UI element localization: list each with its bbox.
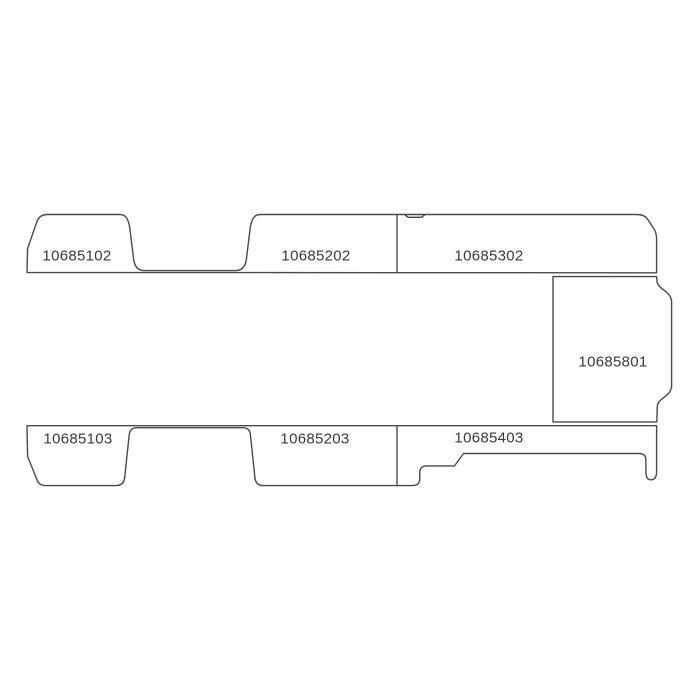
part-label-bottom-left: 10685103	[43, 431, 112, 448]
part-label-bottom-middle: 10685203	[280, 431, 349, 448]
part-label-right-side: 10685801	[578, 354, 647, 371]
diagram-drawing	[0, 0, 700, 700]
right-panel-outline	[553, 277, 672, 422]
part-label-top-middle: 10685202	[281, 248, 350, 265]
part-label-top-left: 10685102	[42, 248, 111, 265]
part-label-bottom-right: 10685403	[454, 430, 523, 447]
part-label-top-right: 10685302	[454, 248, 523, 265]
floor-panel-diagram: 10685102 10685202 10685302 10685801 1068…	[0, 0, 700, 700]
